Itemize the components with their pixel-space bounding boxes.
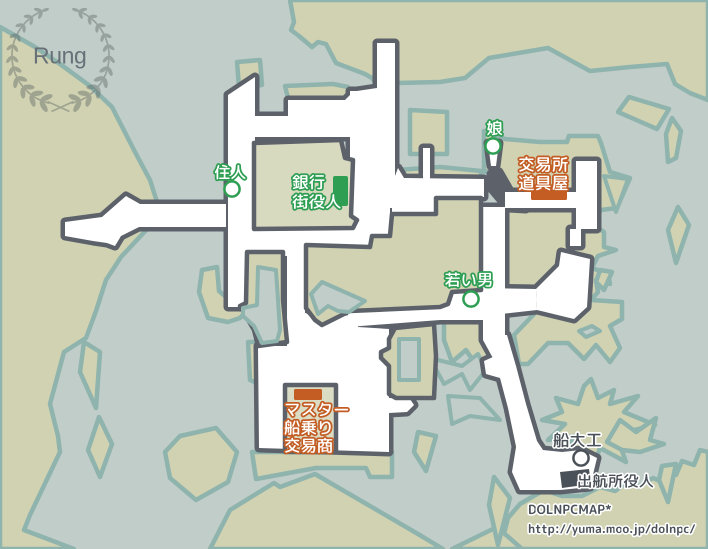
svg-text:Rung: Rung <box>33 43 86 69</box>
